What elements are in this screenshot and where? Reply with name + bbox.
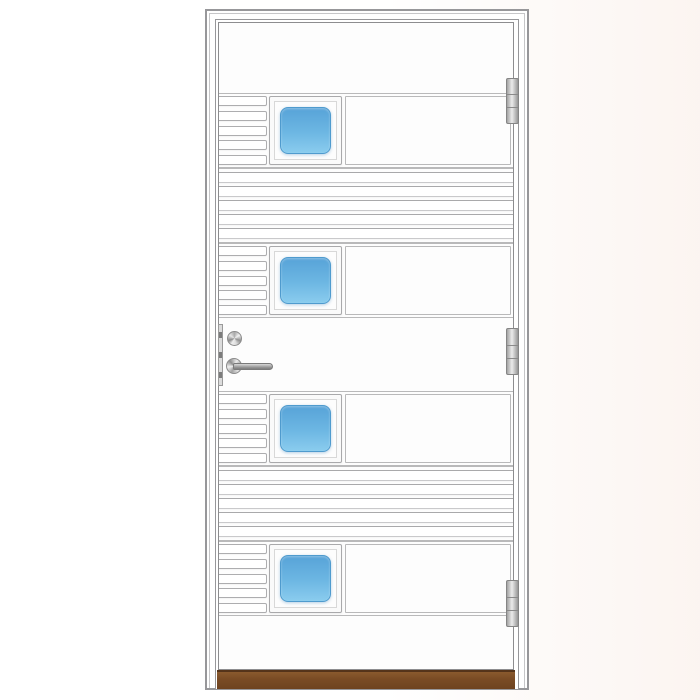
slat: [219, 588, 267, 598]
slat: [219, 453, 267, 463]
slat: [219, 155, 267, 165]
faceplate-slot: [219, 372, 222, 378]
slat: [219, 559, 267, 569]
window-glass: [280, 555, 331, 602]
faceplate-slot: [219, 332, 222, 338]
slat-group: [219, 96, 267, 165]
slat: [219, 246, 267, 256]
groove: [219, 470, 513, 481]
slat: [219, 276, 267, 286]
slat: [219, 574, 267, 584]
side-panel: [345, 96, 511, 165]
hinge-middle: [506, 328, 519, 375]
window-glass: [280, 107, 331, 154]
groove: [219, 512, 513, 523]
faceplate-slot: [219, 352, 222, 358]
window-row-1: [219, 93, 513, 168]
slat-group: [219, 246, 267, 315]
groove: [219, 526, 513, 537]
groove: [219, 214, 513, 225]
slat: [219, 544, 267, 554]
hinge-bottom: [506, 580, 519, 627]
side-panel: [345, 544, 511, 613]
slat: [219, 409, 267, 419]
slat: [219, 111, 267, 121]
groove: [219, 484, 513, 495]
door-leaf: [218, 22, 514, 670]
window-frame: [269, 246, 342, 315]
groove: [219, 228, 513, 239]
groove: [219, 498, 513, 509]
lock-cylinder: [227, 331, 242, 346]
groove: [219, 200, 513, 211]
window-row-2: [219, 243, 513, 318]
groove: [219, 172, 513, 183]
slat: [219, 438, 267, 448]
slat: [219, 305, 267, 315]
window-glass: [280, 257, 331, 304]
slat-group: [219, 544, 267, 613]
window-frame: [269, 96, 342, 165]
side-panel: [345, 394, 511, 463]
window-glass: [280, 405, 331, 452]
window-row-4: [219, 541, 513, 616]
bottom-rail: [219, 616, 513, 669]
slat: [219, 290, 267, 300]
slat: [219, 261, 267, 271]
lock-faceplate: [218, 324, 223, 386]
lock-rail: [219, 318, 513, 391]
window-frame: [269, 394, 342, 463]
window-row-3: [219, 391, 513, 466]
groove-band-2: [219, 466, 513, 541]
slat: [219, 126, 267, 136]
slat: [219, 96, 267, 106]
threshold-sill: [217, 670, 515, 689]
slat: [219, 424, 267, 434]
hinge-top: [506, 78, 519, 124]
side-panel: [345, 246, 511, 315]
top-rail: [219, 23, 513, 93]
slat: [219, 140, 267, 150]
door-handle: [233, 363, 273, 370]
groove: [219, 186, 513, 197]
slat: [219, 603, 267, 613]
slat: [219, 394, 267, 404]
window-frame: [269, 544, 342, 613]
slat-group: [219, 394, 267, 463]
groove-band-1: [219, 168, 513, 243]
door-product-image: [0, 0, 700, 700]
